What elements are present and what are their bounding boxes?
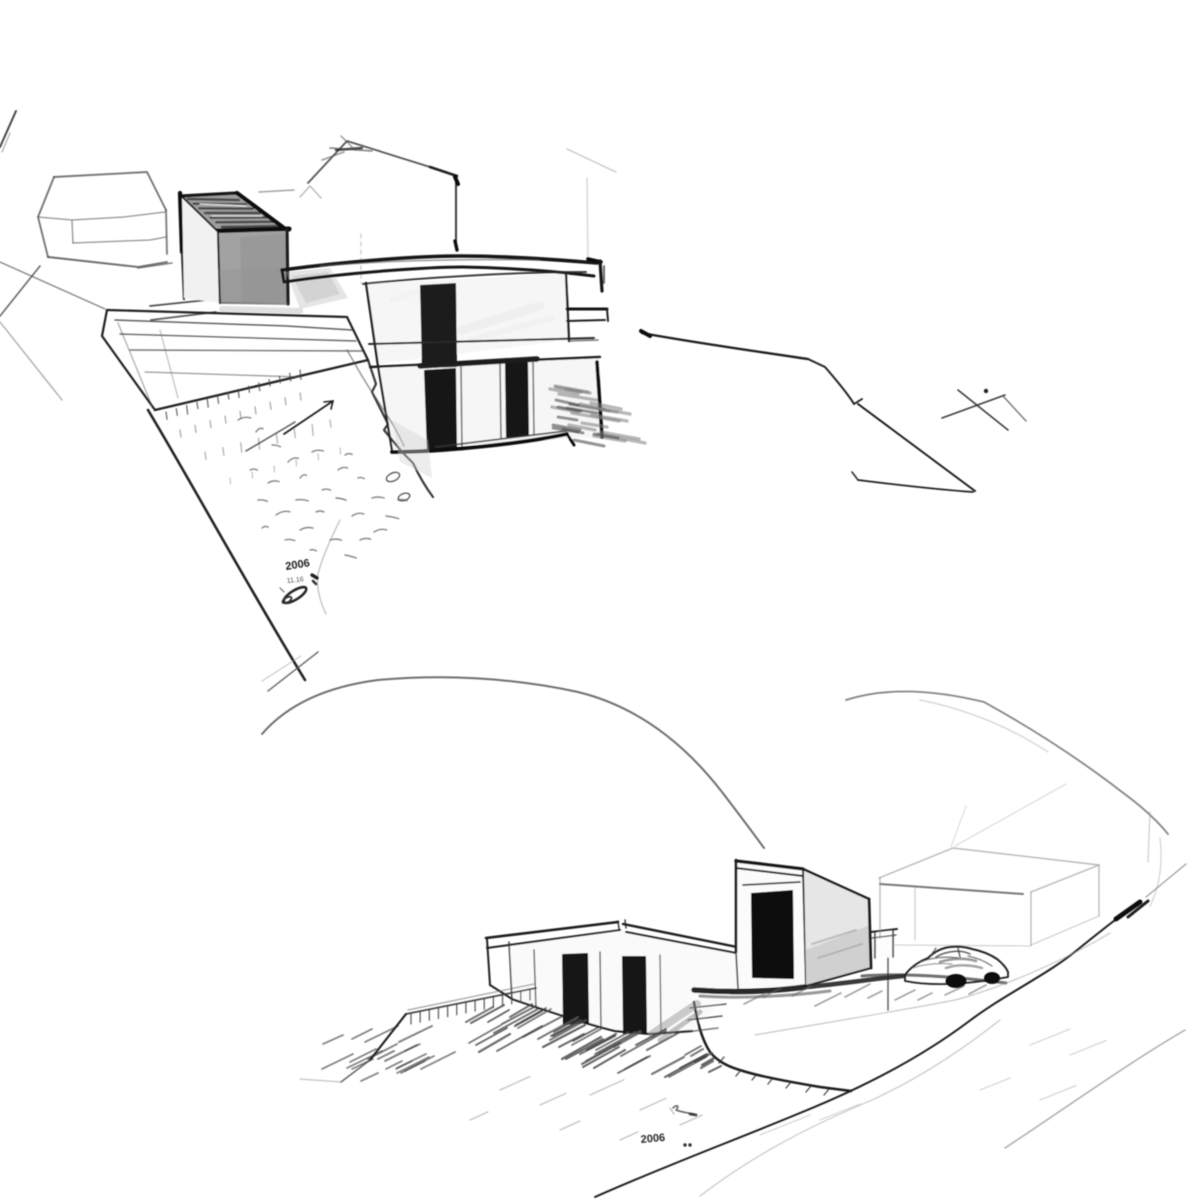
svg-text:2006: 2006 [640, 1132, 665, 1146]
